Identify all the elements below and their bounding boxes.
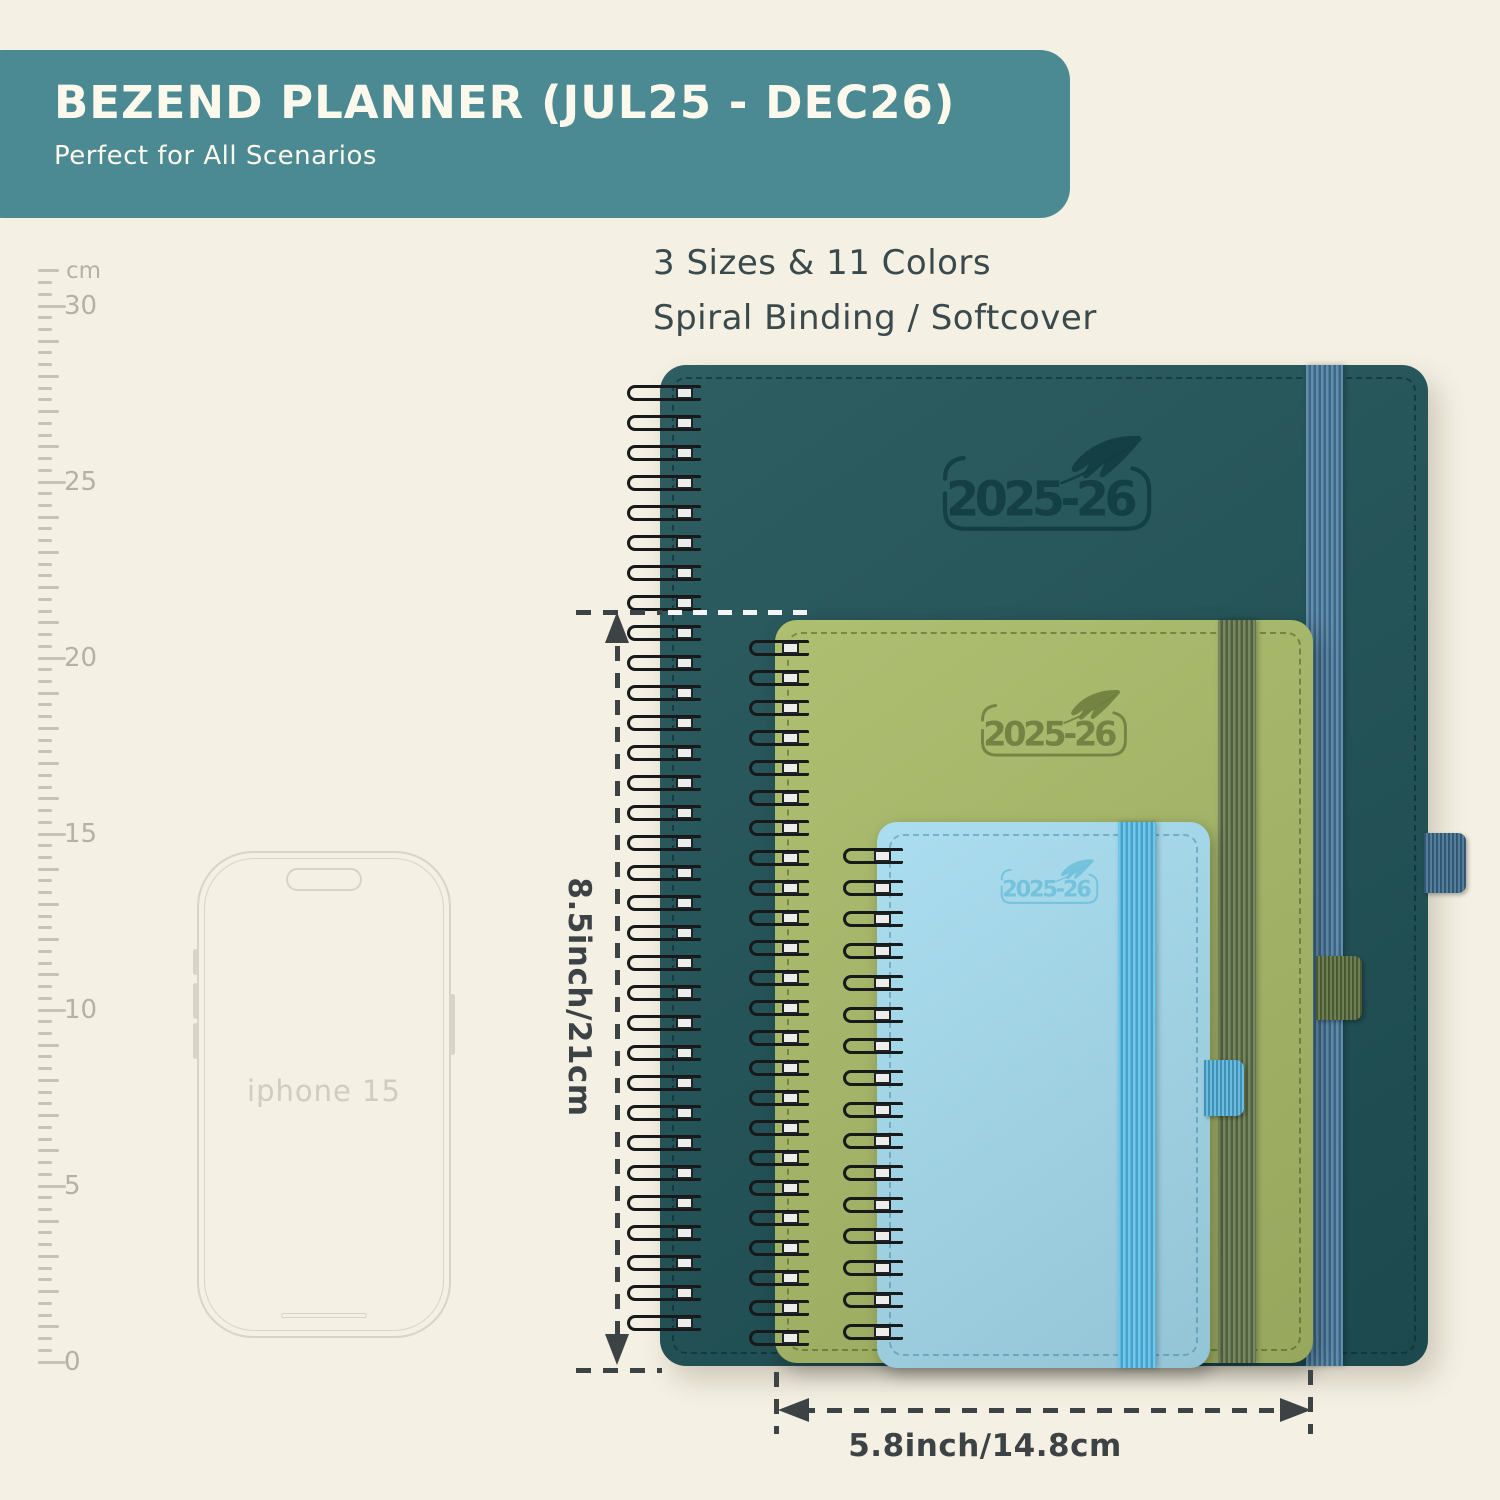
spiral-coil: [627, 955, 701, 971]
ruler-tick: [38, 1243, 52, 1246]
ruler-tick: [38, 1114, 59, 1117]
ruler-tick: [38, 1091, 52, 1094]
ruler-tick: [38, 715, 52, 718]
spiral-coil: [749, 700, 809, 716]
large-planner-year-emblem: 2025-26: [920, 433, 1170, 548]
small-planner-year-text: 2025-26: [1002, 877, 1093, 903]
ruler-tick: [38, 1255, 59, 1258]
spiral-coil: [627, 385, 701, 401]
ruler-tick: [38, 1079, 59, 1082]
spiral-coil: [749, 880, 809, 896]
spiral-coil: [843, 880, 903, 896]
ruler-tick: [38, 293, 52, 296]
height-dim-line: [615, 646, 620, 1338]
ruler-tick: [38, 1009, 66, 1012]
ruler-tick: [38, 680, 52, 683]
ruler-tick: [38, 762, 59, 765]
spiral-coil: [627, 775, 701, 791]
ruler-tick: [38, 938, 59, 941]
ruler-tick: [38, 1337, 52, 1340]
ruler-tick: [38, 997, 52, 1000]
ruler-tick: [38, 750, 52, 753]
ruler-tick: [38, 950, 52, 953]
product-infographic: BEZEND PLANNER (JUL25 - DEC26) Perfect f…: [0, 0, 1500, 1500]
spiral-coil: [627, 895, 701, 911]
small-planner-elastic-band: [1118, 822, 1156, 1368]
ruler-label: 5: [64, 1171, 81, 1201]
ruler-tick: [38, 1208, 52, 1211]
ruler-tick: [38, 1325, 59, 1328]
ruler-label: 20: [64, 643, 97, 673]
arrow-down-icon: [605, 1334, 629, 1365]
spiral-coil: [843, 848, 903, 864]
ruler-tick: [38, 879, 52, 882]
ruler-tick: [38, 527, 52, 530]
spiral-coil: [749, 760, 809, 776]
ruler-tick: [38, 398, 52, 401]
ruler-unit-label: cm: [66, 258, 101, 284]
spiral-coil: [749, 850, 809, 866]
spiral-coil: [627, 865, 701, 881]
ruler-tick: [38, 445, 59, 448]
ruler-tick: [38, 410, 59, 413]
medium-planner-elastic-band: [1218, 620, 1256, 1363]
spiral-coil: [843, 1197, 903, 1213]
spiral-coil: [627, 1045, 701, 1061]
ruler-tick: [38, 1231, 52, 1234]
ruler-tick: [38, 1196, 52, 1199]
ruler-tick: [38, 340, 59, 343]
ruler-label: 30: [64, 291, 97, 321]
ruler-tick: [38, 915, 52, 918]
ruler-tick: [38, 1267, 52, 1270]
small-planner-pen-loop: [1204, 1060, 1244, 1116]
phone-volume-up-button: [193, 983, 198, 1019]
ruler-tick: [38, 516, 59, 519]
ruler-tick: [38, 363, 52, 366]
spiral-coil: [749, 1060, 809, 1076]
ruler-tick: [38, 328, 52, 331]
ruler-tick: [38, 1302, 52, 1305]
spiral-coil: [843, 1260, 903, 1276]
large-planner-year-text: 2025-26: [946, 472, 1140, 527]
spiral-coil: [627, 1165, 701, 1181]
ruler-tick: [38, 1220, 59, 1223]
spiral-coil: [749, 670, 809, 686]
spiral-coil: [843, 1038, 903, 1054]
width-dim-right-tick: [1308, 1370, 1313, 1434]
ruler-tick: [38, 1044, 59, 1047]
spiral-coil: [627, 1105, 701, 1121]
spiral-coil: [627, 715, 701, 731]
phone-volume-down-button: [193, 1023, 198, 1059]
spiral-coil: [843, 1133, 903, 1149]
spiral-coil: [749, 730, 809, 746]
ruler-tick: [38, 1290, 59, 1293]
spiral-coil: [627, 685, 701, 701]
ruler-tick: [38, 375, 59, 378]
ruler-tick: [38, 1173, 52, 1176]
ruler-tick: [38, 668, 52, 671]
spiral-coil: [627, 565, 701, 581]
ruler-tick: [38, 1314, 52, 1317]
spiral-coil: [627, 595, 701, 611]
ruler-tick: [38, 703, 52, 706]
ruler-tick: [38, 645, 52, 648]
product-subtitle: Perfect for All Scenarios: [54, 141, 1070, 171]
spiral-coil: [749, 1120, 809, 1136]
spiral-coil: [627, 835, 701, 851]
ruler-tick: [38, 539, 52, 542]
medium-planner-pen-loop: [1316, 956, 1362, 1020]
width-dim-line: [800, 1408, 1278, 1413]
ruler-tick: [38, 868, 59, 871]
spiral-coil: [627, 985, 701, 1001]
ruler-label: 0: [64, 1347, 81, 1377]
header-banner: BEZEND PLANNER (JUL25 - DEC26) Perfect f…: [0, 50, 1070, 218]
spiral-coil: [749, 1330, 809, 1346]
ruler-tick: [38, 774, 52, 777]
ruler-tick: [38, 316, 52, 319]
spiral-coil: [627, 475, 701, 491]
ruler-tick: [38, 621, 59, 624]
phone-speaker-slot: [281, 1313, 367, 1318]
spiral-coil: [627, 1225, 701, 1241]
feature-callout: 3 Sizes & 11 Colors Spiral Binding / Sof…: [653, 243, 1097, 338]
ruler-tick: [38, 727, 59, 730]
ruler-tick: [38, 797, 59, 800]
ruler-tick: [38, 1102, 52, 1105]
ruler-tick: [38, 844, 52, 847]
spiral-coil: [627, 745, 701, 761]
spiral-coil: [749, 970, 809, 986]
ruler-tick: [38, 551, 59, 554]
phone-power-button: [450, 994, 455, 1055]
spiral-coil: [627, 445, 701, 461]
width-dimension-label: 5.8inch/14.8cm: [785, 1428, 1185, 1464]
ruler-tick: [38, 903, 59, 906]
spiral-coil: [749, 1240, 809, 1256]
spiral-coil: [749, 640, 809, 656]
medium-planner-year-emblem: 2025-26: [965, 688, 1140, 768]
spiral-coil: [627, 535, 701, 551]
spiral-coil: [627, 1135, 701, 1151]
spiral-coil: [749, 1210, 809, 1226]
spiral-coil: [627, 1015, 701, 1031]
ruler-label: 25: [64, 467, 97, 497]
ruler-tick: [38, 1067, 52, 1070]
feature-sizes-colors: 3 Sizes & 11 Colors: [653, 243, 1097, 283]
spiral-coil: [749, 1180, 809, 1196]
ruler-tick: [38, 633, 52, 636]
spiral-coil: [627, 415, 701, 431]
spiral-coil: [843, 975, 903, 991]
ruler-tick: [38, 1020, 52, 1023]
ruler-tick: [38, 973, 59, 976]
ruler-tick: [38, 856, 52, 859]
spiral-coil: [843, 1324, 903, 1340]
spiral-coil: [843, 943, 903, 959]
spiral-coil: [843, 911, 903, 927]
spiral-coil: [843, 1070, 903, 1086]
ruler-tick: [38, 610, 52, 613]
height-dim-top-tick-on-cover: [668, 610, 814, 615]
height-dim-bottom-tick: [576, 1368, 662, 1373]
ruler-tick: [38, 833, 66, 836]
ruler-tick: [38, 387, 52, 390]
ruler-tick: [38, 1149, 59, 1152]
spiral-coil: [627, 1285, 701, 1301]
small-planner-year-emblem: 2025-26: [990, 858, 1107, 912]
ruler-tick: [38, 926, 52, 929]
arrow-up-icon: [605, 612, 629, 643]
height-dimension-label: 8.5inch/21cm: [561, 847, 597, 1147]
spiral-coil: [627, 655, 701, 671]
spiral-coil: [843, 1102, 903, 1118]
spiral-coil: [627, 1195, 701, 1211]
ruler-tick: [38, 962, 52, 965]
spiral-coil: [627, 625, 701, 641]
ruler-tick: [38, 891, 52, 894]
ruler-tick: [38, 434, 52, 437]
ruler-tick: [38, 1361, 66, 1364]
ruler-label: 15: [64, 819, 97, 849]
ruler-tick: [38, 1055, 52, 1058]
ruler-tick: [38, 692, 59, 695]
ruler-tick: [38, 504, 52, 507]
spiral-coil: [627, 805, 701, 821]
large-planner-pen-loop: [1424, 833, 1466, 893]
ruler-tick: [38, 481, 66, 484]
spiral-coil: [749, 1030, 809, 1046]
feature-binding: Spiral Binding / Softcover: [653, 298, 1097, 338]
ruler-tick: [38, 492, 52, 495]
spiral-coil: [749, 1090, 809, 1106]
ruler-tick: [38, 739, 52, 742]
dynamic-island-icon: [286, 868, 362, 891]
spiral-coil: [749, 940, 809, 956]
ruler-tick: [38, 821, 52, 824]
ruler-tick: [38, 1185, 66, 1188]
spiral-coil: [749, 820, 809, 836]
spiral-coil: [749, 1000, 809, 1016]
ruler-tick: [38, 1278, 52, 1281]
medium-planner-year-text: 2025-26: [983, 715, 1119, 754]
spiral-coil: [627, 1255, 701, 1271]
ruler-tick: [38, 657, 66, 660]
spiral-coil: [843, 1228, 903, 1244]
spiral-coil: [843, 1165, 903, 1181]
spiral-coil: [627, 505, 701, 521]
ruler-tick: [38, 1138, 52, 1141]
spiral-coil: [627, 925, 701, 941]
phone-action-button: [193, 949, 198, 975]
spiral-coil: [749, 910, 809, 926]
ruler-tick: [38, 351, 52, 354]
ruler-tick: [38, 422, 52, 425]
ruler-tick: [38, 469, 52, 472]
ruler-tick: [38, 281, 52, 284]
ruler-tick: [38, 809, 52, 812]
ruler-label: 10: [64, 995, 97, 1025]
ruler-tick: [38, 457, 52, 460]
phone-label: iphone 15: [199, 1074, 449, 1108]
spiral-coil: [749, 1300, 809, 1316]
spiral-coil: [749, 790, 809, 806]
product-title: BEZEND PLANNER (JUL25 - DEC26): [54, 76, 1070, 129]
ruler-tick: [38, 786, 52, 789]
phone-outline: iphone 15: [197, 851, 451, 1338]
ruler-tick: [38, 563, 52, 566]
ruler-tick: [38, 1032, 52, 1035]
ruler-tick: [38, 985, 52, 988]
ruler-tick: [38, 598, 52, 601]
ruler-tick: [38, 1349, 52, 1352]
ruler-tick: [38, 1126, 52, 1129]
arrow-right-icon: [1280, 1398, 1311, 1422]
spiral-coil: [843, 1007, 903, 1023]
ruler-tick: [38, 586, 59, 589]
ruler-tick: [38, 574, 52, 577]
spiral-coil: [627, 1075, 701, 1091]
spiral-coil: [627, 1315, 701, 1331]
ruler-tick: [38, 1161, 52, 1164]
spiral-coil: [749, 1150, 809, 1166]
spiral-coil: [749, 1270, 809, 1286]
ruler-tick: [38, 305, 66, 308]
spiral-coil: [843, 1292, 903, 1308]
ruler-tick: [38, 269, 59, 272]
